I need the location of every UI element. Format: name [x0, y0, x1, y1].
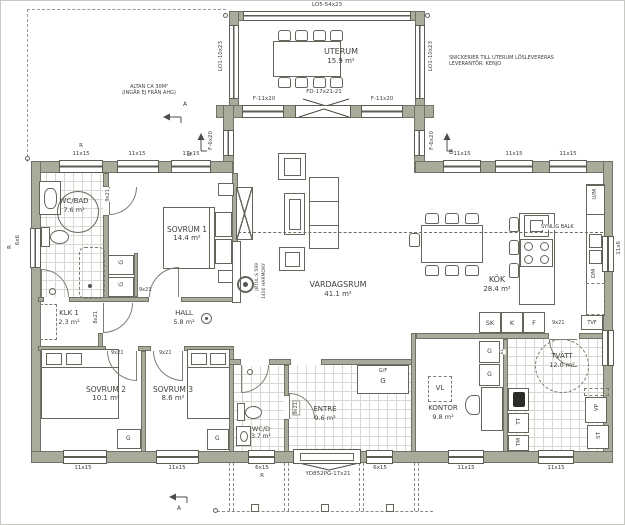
window-label-11x15: 11x15 [447, 465, 485, 472]
room-area: 10.1 m² [68, 394, 144, 403]
window-label-11x15: 11x15 [537, 465, 575, 472]
uterum-chair [330, 30, 343, 41]
window-label-lo1-right: LO1-10x23 [428, 41, 435, 71]
porch-corner-marker [213, 508, 218, 513]
armchair-seat [284, 158, 301, 176]
window-f6x20-left [223, 130, 234, 156]
door-arc-klk [103, 303, 133, 333]
window-lo1-right [415, 25, 425, 99]
window-6x15-wcd [248, 450, 275, 464]
tvatt-shelf [584, 388, 609, 396]
stove [520, 239, 553, 267]
window-label-r: R [75, 143, 87, 150]
room-area: 28.4 m² [467, 285, 527, 294]
window-label-11x15: 11x15 [115, 151, 159, 158]
window-6x6-west [30, 228, 41, 268]
tvatt-sink [513, 392, 525, 407]
door-label-main: YD852PG-17x21 [297, 471, 359, 478]
window-lo1-left [229, 25, 239, 99]
section-label-a-top: A [183, 101, 187, 109]
porch-post-line [414, 463, 415, 511]
fireplace-core [243, 282, 248, 287]
room-name: KÖK [467, 275, 527, 285]
vp-unit: VP [585, 397, 607, 423]
room-name: TVÄTT [539, 352, 585, 361]
pillow [210, 353, 226, 365]
synlig-balk-line [238, 232, 603, 233]
door-arc-wcbad [109, 187, 137, 215]
sovrum3-bed [187, 349, 230, 419]
window-label-f11x20-left: F-11x20 [241, 96, 287, 103]
wcbad-toilet-bowl [50, 230, 69, 244]
armchair [279, 247, 305, 271]
room-name: KLK 1 [41, 309, 97, 318]
island-stool [509, 217, 519, 232]
window-label-lo1-left: LO1-10x23 [218, 41, 225, 71]
room-area: 12.0 m² [539, 361, 585, 369]
tt-unit: TT [508, 413, 529, 433]
room-label-klk: KLK 1 2.3 m² [41, 309, 97, 326]
room-label-uterum: UTERUM 15.9 m² [301, 47, 381, 66]
entrance-door-yd [293, 449, 361, 464]
room-name: WC/BAD [43, 197, 105, 206]
door-label-wcbad: 9x21 [105, 189, 111, 202]
room-area: 14.4 m² [147, 234, 227, 243]
burner-icon [524, 242, 533, 251]
kok-chair [409, 233, 420, 247]
jotul-label-2: 1400 HARMONY [262, 263, 268, 299]
altan-note-line2: (INGÅR EJ FRÅN AHG) [93, 90, 205, 96]
armchair-seat [285, 252, 300, 267]
section-arrow-a-top [161, 109, 183, 125]
window-11x15-ne3 [549, 160, 587, 173]
porch-post-line [288, 463, 289, 511]
kok-chair [425, 213, 439, 224]
post-marker [223, 13, 228, 18]
porch-post [321, 504, 329, 512]
jotul-label-1: JØTUL S 599 [255, 263, 261, 291]
kok-sink [589, 234, 602, 248]
wardrobe-label: G [118, 260, 126, 265]
g-label: G [358, 377, 408, 386]
window-label-11x15: 11x15 [61, 465, 105, 472]
tm-unit: TM [508, 435, 529, 451]
window-11x15-sw2 [156, 450, 199, 464]
sovrum1-wardrobe: G [108, 277, 134, 297]
window-label-11x15: 11x15 [59, 151, 103, 158]
synlig-balk-label: SYNLIG BALK [541, 224, 574, 230]
porch-post-line [229, 463, 230, 511]
wall-e-stub [38, 297, 44, 302]
snickerier-note: SNICKERIER TILL UTERUM LÖSLEVERERAS LEVE… [449, 55, 554, 68]
armchair-seat [289, 199, 301, 230]
kok-chair [465, 213, 479, 224]
window-label-11x6: 11x6 [616, 241, 623, 255]
window-east-tvatt [602, 330, 614, 366]
um-label: U/M [592, 189, 599, 200]
window-label-f6x20-right: F-6x20 [429, 131, 436, 150]
window-6x15-entre [366, 450, 393, 464]
room-area: 3.7 m² [239, 433, 283, 441]
section-label-b-right: B [449, 149, 453, 157]
sofa-cushion-line [310, 225, 338, 226]
wall-wcd-entre-b [284, 419, 289, 452]
room-label-wcbad: WC/BAD 7.6 m² [43, 197, 105, 214]
porch-post-line [284, 463, 285, 511]
room-name: KONTOR [417, 404, 469, 413]
room-label-kok: KÖK 28.4 m² [467, 275, 527, 294]
wardrobe-label: G [480, 348, 499, 356]
kok-upper-cabinet [586, 283, 605, 315]
window-label-lo5: LO5-54x23 [296, 2, 358, 9]
um-cabinet: U/M [586, 185, 605, 215]
window-label-11x15: 11x15 [493, 151, 535, 158]
porch-post [386, 504, 394, 512]
wardrobe-label: G [118, 282, 126, 287]
shower-drain-icon [88, 284, 92, 288]
desk [481, 387, 503, 431]
st-label: ST [596, 432, 603, 439]
room-name: SOVRUM 2 [68, 385, 144, 394]
window-label-r: R [257, 473, 267, 480]
window-label-f6x20-left: F-6x20 [208, 131, 215, 150]
k-label: K [502, 319, 522, 327]
room-label-sovrum1: SOVRUM 1 14.4 m² [147, 225, 227, 243]
tt-label: TT [516, 418, 523, 425]
window-11x6-east [602, 236, 614, 272]
sofa [309, 177, 339, 249]
tvatt-sink-unit [508, 388, 529, 411]
room-name: HALL [156, 309, 212, 318]
wardrobe-label: G [480, 371, 499, 379]
entrance-door-panel [300, 453, 354, 461]
door-label-sovrum1: 9x21 [139, 287, 152, 293]
floor-plan: G G U/M DM [0, 0, 625, 525]
window-label-r-west: R [7, 245, 14, 249]
window-f11x20-right [361, 105, 403, 118]
window-f11x20-left [242, 105, 284, 118]
wcbad-toilet-tank [41, 227, 50, 247]
pillow [66, 353, 82, 365]
window-label-11x15: 11x15 [441, 151, 483, 158]
kok-chair [445, 265, 459, 276]
island-stool [509, 240, 519, 255]
room-name: SOVRUM 1 [147, 225, 227, 234]
armchair [278, 153, 306, 180]
entre-closet: G/F G [357, 365, 409, 394]
wcd-toilet-tank [237, 403, 245, 421]
altan-note: ALTAN CA 30M² (INGÅR EJ FRÅN AHG) [93, 84, 205, 97]
post-marker [425, 13, 430, 18]
wall-c-a [229, 359, 241, 365]
wall-wcbad-sovrum1-a [103, 173, 109, 187]
section-arrow-b-left [193, 131, 209, 153]
uterum-chair [295, 30, 308, 41]
k-cabinet: K [501, 312, 523, 333]
burner-icon [540, 242, 549, 251]
window-label-6x15: 6x15 [245, 465, 279, 472]
burner-icon [540, 255, 549, 264]
st-unit: ST [587, 425, 609, 449]
wardrobe-label: G [126, 435, 131, 443]
vp-label: VP [594, 404, 601, 411]
wall-kok-tvatt [579, 333, 603, 339]
sofa-cushion-line [310, 201, 338, 202]
room-label-tvatt: TVÄTT 12.0 m² [539, 352, 585, 369]
window-f6x20-right [414, 130, 425, 156]
bed-line [188, 367, 229, 368]
uterum-chair [278, 77, 291, 88]
room-label-kontor: KONTOR 9.8 m² [417, 404, 469, 421]
room-label-vardagsrum: VARDAGSRUM 41.1 m² [293, 280, 383, 299]
room-area: 5.8 m² [156, 318, 212, 326]
wall-e-right [181, 297, 238, 302]
sovrum1-wardrobe: G [108, 255, 134, 275]
porch-post-line [359, 463, 360, 511]
corner-marker [25, 156, 30, 161]
window-11x15-tvatt [538, 450, 574, 464]
wall-wcd-entre-a [284, 365, 289, 396]
porch-post-line [418, 463, 419, 511]
wall-entre-kontor [411, 333, 416, 452]
f-label: F [524, 319, 544, 327]
tvf-cabinet: TVF [581, 315, 603, 330]
door-label-tvatt: 9x21 [552, 320, 565, 326]
window-11x15-nw1 [59, 160, 103, 173]
uterum-chair [313, 30, 326, 41]
tm-label: TM [516, 438, 523, 446]
f-cabinet: F [523, 312, 545, 333]
room-label-sovrum2: SOVRUM 2 10.1 m² [68, 385, 144, 403]
pillow [191, 353, 207, 365]
room-label-entre: ENTRÉ 9.6 m² [301, 405, 349, 422]
room-name: ENTRÉ [301, 405, 349, 414]
el-label: EL [500, 349, 506, 354]
uterum-chair [295, 77, 308, 88]
sk-label: SK [480, 319, 500, 327]
tvf-label: TVF [582, 320, 602, 326]
bed-line [42, 367, 118, 368]
kontor-wardrobe: G [479, 341, 500, 363]
window-label-11x15: 11x15 [547, 151, 589, 158]
window-11x15-nw3 [171, 160, 211, 173]
window-label-6x6: 6x6 [15, 235, 22, 245]
room-area: 9.8 m² [417, 413, 469, 421]
room-area: 8.6 m² [135, 394, 211, 403]
room-name: VARDAGSRUM [293, 280, 383, 290]
window-label-f11x20-right: F-11x20 [359, 96, 405, 103]
pillow [46, 353, 62, 365]
door-label-sovrum3: 9x21 [159, 350, 172, 356]
gf-label: G/F [358, 368, 408, 374]
sovrum2-wardrobe: G [117, 429, 141, 449]
burner-icon [524, 255, 533, 264]
kok-chair [445, 213, 459, 224]
window-label-6x15: 6x15 [363, 465, 397, 472]
kok-chair [425, 265, 439, 276]
sovrum1-nightstand [218, 183, 234, 196]
wardrobe-label: G [215, 435, 220, 443]
fireplace-icon [237, 276, 254, 293]
room-area: 7.6 m² [43, 206, 105, 214]
door-label-klk: 8x21 [93, 311, 99, 324]
sovrum3-wardrobe: G [207, 429, 229, 450]
uterum-chair [313, 77, 326, 88]
porch-post-line [233, 463, 234, 511]
room-name: SOVRUM 3 [135, 385, 211, 394]
window-11x15-nw2 [117, 160, 159, 173]
kok-table [421, 225, 483, 263]
sk-cabinet: SK [479, 312, 501, 333]
wcbad-shower [79, 247, 105, 299]
window-11x15-ne2 [495, 160, 533, 173]
door-label-sovrum2: 9x21 [111, 350, 124, 356]
kok-sink [589, 250, 602, 264]
room-label-wcd: WC/D 3.7 m² [239, 425, 283, 441]
room-label-hall: HALL 5.8 m² [156, 309, 212, 326]
dm-label: DM [591, 269, 598, 278]
wall-shelf [232, 241, 241, 303]
wall-closet-nook [134, 253, 138, 297]
snickerier-line2: LEVERANTÖR: KENJO [449, 61, 554, 67]
door-label-entre: 9x21 [292, 401, 300, 416]
window-lo5 [243, 11, 411, 21]
window-11x15-kontor [448, 450, 484, 464]
room-area: 9.6 m² [301, 414, 349, 422]
vl-label: VL [429, 384, 451, 393]
section-label-a-bottom: A [177, 505, 181, 513]
uterum-chair [330, 77, 343, 88]
uterum-chair [278, 30, 291, 41]
room-area: 2.3 m² [41, 318, 97, 326]
armchair [284, 193, 305, 235]
room-name: WC/D [239, 425, 283, 433]
door-arc-sovrum1 [149, 267, 179, 297]
door-label-fd: FD-17x21-21 [298, 89, 350, 96]
window-label-11x15: 11x15 [155, 465, 199, 472]
room-area: 15.9 m² [301, 57, 381, 66]
wcd-toilet-bowl [245, 406, 262, 419]
vl-unit: VL [428, 376, 452, 402]
window-11x15-sw1 [63, 450, 107, 464]
wall-kok-kontor [416, 333, 549, 339]
section-label-b-left: B [187, 151, 191, 159]
room-label-sovrum3: SOVRUM 3 8.6 m² [135, 385, 211, 403]
kontor-wardrobe: G [479, 364, 500, 386]
room-area: 41.1 m² [293, 290, 383, 299]
porch-post [251, 504, 259, 512]
door-fd-uterum [295, 105, 351, 118]
room-name: UTERUM [301, 47, 381, 57]
window-11x15-ne1 [443, 160, 481, 173]
